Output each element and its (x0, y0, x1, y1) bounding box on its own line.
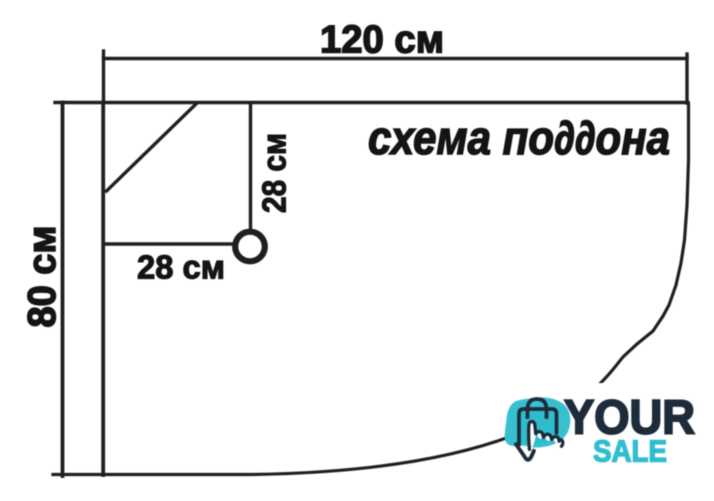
svg-text:80 см: 80 см (21, 226, 64, 328)
svg-text:схема по∂∂она: схема по∂∂она (368, 111, 670, 164)
svg-text:120 см: 120 см (320, 19, 444, 62)
svg-text:28 см: 28 см (256, 133, 293, 213)
svg-text:SALE: SALE (593, 434, 667, 469)
svg-text:28 см: 28 см (137, 249, 225, 286)
